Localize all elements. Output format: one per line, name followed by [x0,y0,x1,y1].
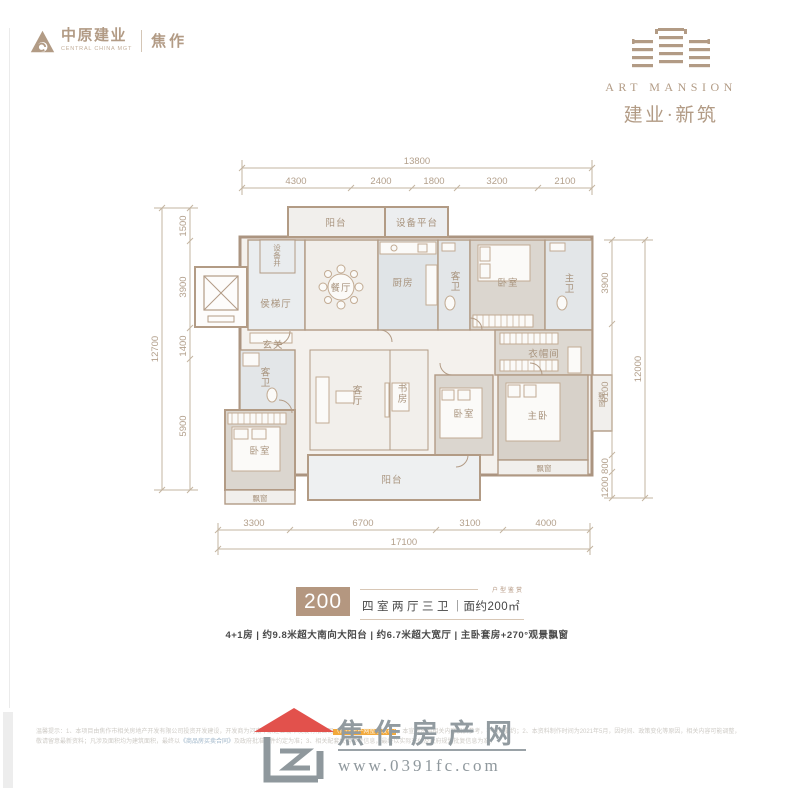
label-master-bedroom: 主卧 [527,410,548,422]
label-cloakroom: 衣帽间 [528,348,560,360]
project-name-cn: 建业·新筑 [566,100,776,127]
dim-bottom-2: 6700 [352,518,373,529]
label-foyer: 玄关 [262,339,283,351]
dim-right-total: 12000 [633,356,644,382]
label-dining: 餐厅 [330,282,351,294]
floorplan: 阳台 设备平台 设备井 侯梯厅 餐厅 厨房 客卫 卧室 主卫 玄关 衣帽间 客卫… [140,145,700,580]
label-living: 客厅 [351,384,363,406]
unit-spec: 户型鉴赏 四室两厅三卫｜面约200㎡ [360,585,524,620]
page: 中原建业 CENTRAL CHINA MGT 焦作 [0,0,794,790]
dim-right-2: 6100 [600,381,611,402]
page-edge-bar [3,712,13,788]
city-label: 焦作 [151,30,187,51]
dim-right-4: 1200 [600,476,611,497]
label-bedroom-left: 卧室 [249,445,270,457]
spec-rule-top [360,589,478,590]
developer-name-cn: 中原建业 [61,28,132,44]
label-balcony-top: 阳台 [325,217,346,229]
spec-rooms: 四室两厅三卫 [362,601,452,613]
dim-left-4: 5900 [178,415,189,436]
dim-top-1: 4300 [285,176,306,187]
developer-name-en: CENTRAL CHINA MGT [61,46,132,52]
dim-left-1: 1500 [178,215,189,236]
dim-top-2: 2400 [370,176,391,187]
spec-divider: ｜ [452,601,464,613]
dim-bottom-1: 3300 [243,518,264,529]
dim-top-3: 1800 [423,176,444,187]
site-url: www.0391fc.com [338,756,501,776]
dim-top-4: 3200 [486,176,507,187]
label-equipment-platform: 设备平台 [396,217,438,229]
label-guest-bath-top: 客卫 [449,270,461,292]
label-bedroom-mid: 卧室 [453,408,474,420]
header-divider [141,30,142,52]
dim-left-3: 1400 [178,335,189,356]
site-rule [338,749,526,751]
page-edge-line [9,28,10,708]
dim-right-1: 3900 [600,272,611,293]
site-name: 焦作房产网 [337,712,522,751]
project-logo-icon [632,26,710,74]
site-logo-icon [252,706,336,786]
spec-text: 四室两厅三卫｜面约200㎡ [360,593,524,619]
feature-line: 4+1房 | 约9.8米超大南向大阳台 | 约6.7米超大宽厅 | 主卧套房+2… [0,627,794,641]
dim-right-3: 800 [600,458,611,474]
spec-caption: 户型鉴赏 [492,585,524,594]
developer-logo-icon [29,28,56,55]
disclaimer-link: 《商品房买卖合同》 [180,739,234,745]
label-master-bath: 主卫 [563,272,575,294]
dim-bottom-4: 4000 [535,518,556,529]
dim-left-total: 12700 [150,336,161,362]
label-bedroom-top: 卧室 [497,277,518,289]
dim-top-5: 2100 [554,176,575,187]
developer-logo: 中原建业 CENTRAL CHINA MGT 焦作 [29,28,187,55]
site-logo [252,706,336,790]
label-study: 书房 [396,383,408,404]
label-bay-right: 飘窗 [537,463,552,473]
label-elevator-hall: 侯梯厅 [260,298,292,310]
dim-bottom-total: 17100 [391,537,417,548]
project-name-en: ART MANSION [566,80,776,95]
label-equipment-shaft: 设备井 [272,243,281,268]
label-balcony-bottom: 阳台 [381,474,402,486]
label-bay-left: 飘窗 [253,493,268,503]
project-logo: ART MANSION 建业·新筑 [566,26,776,127]
spec-rule-bottom [360,619,524,620]
spec-area: 面约200㎡ [464,601,521,613]
dim-bottom-3: 3100 [459,518,480,529]
dim-left-2: 3900 [178,276,189,297]
dim-top-total: 13800 [404,156,430,167]
area-badge: 200 [296,587,350,616]
elevator-shaft [195,267,247,327]
label-kitchen: 厨房 [392,277,413,289]
label-guest-bath-left: 客卫 [259,366,271,388]
